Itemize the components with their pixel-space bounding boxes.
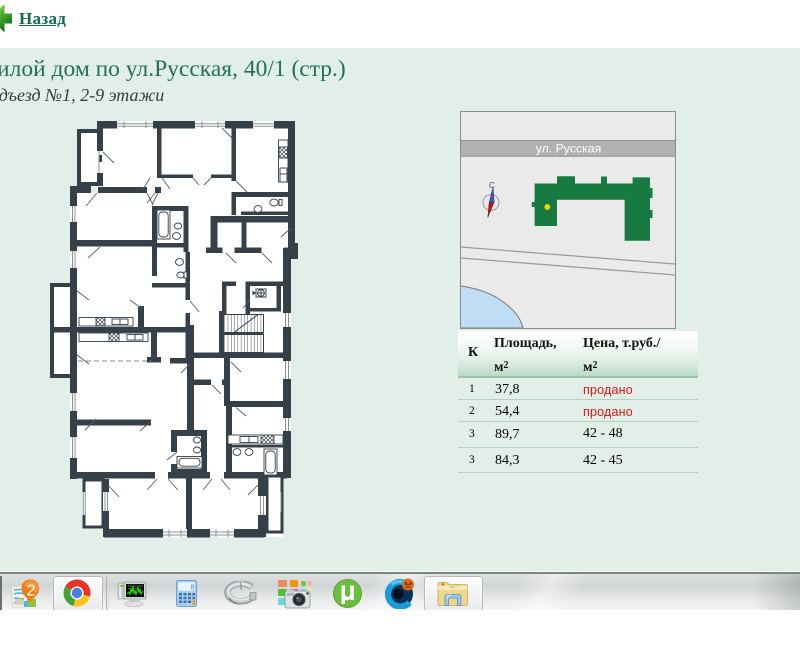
svg-text:С: С <box>489 180 495 190</box>
svg-text:ул. Русская: ул. Русская <box>536 142 602 156</box>
svg-text:2: 2 <box>27 583 36 600</box>
svg-text:8: 8 <box>191 585 195 592</box>
